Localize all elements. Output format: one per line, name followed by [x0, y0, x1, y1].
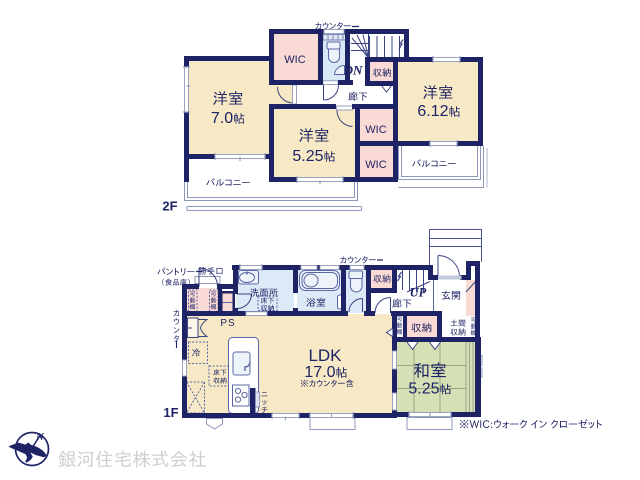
svg-text:17.0: 17.0	[304, 364, 335, 381]
svg-text:1F: 1F	[163, 405, 178, 420]
svg-text:WIC: WIC	[284, 54, 305, 66]
svg-text:WIC: WIC	[365, 124, 386, 136]
svg-text:5.25: 5.25	[408, 381, 439, 398]
svg-text:UP: UP	[410, 286, 427, 300]
svg-text:DN: DN	[343, 63, 363, 78]
svg-text:2F: 2F	[162, 199, 177, 214]
svg-text:WIC: WIC	[365, 159, 386, 171]
svg-text:5.25: 5.25	[292, 148, 323, 165]
svg-text:6.12: 6.12	[417, 103, 448, 120]
svg-text:7.0: 7.0	[211, 110, 233, 127]
svg-text:N: N	[35, 431, 45, 443]
svg-text:PS: PS	[220, 318, 235, 329]
svg-text:LDK: LDK	[308, 346, 342, 365]
